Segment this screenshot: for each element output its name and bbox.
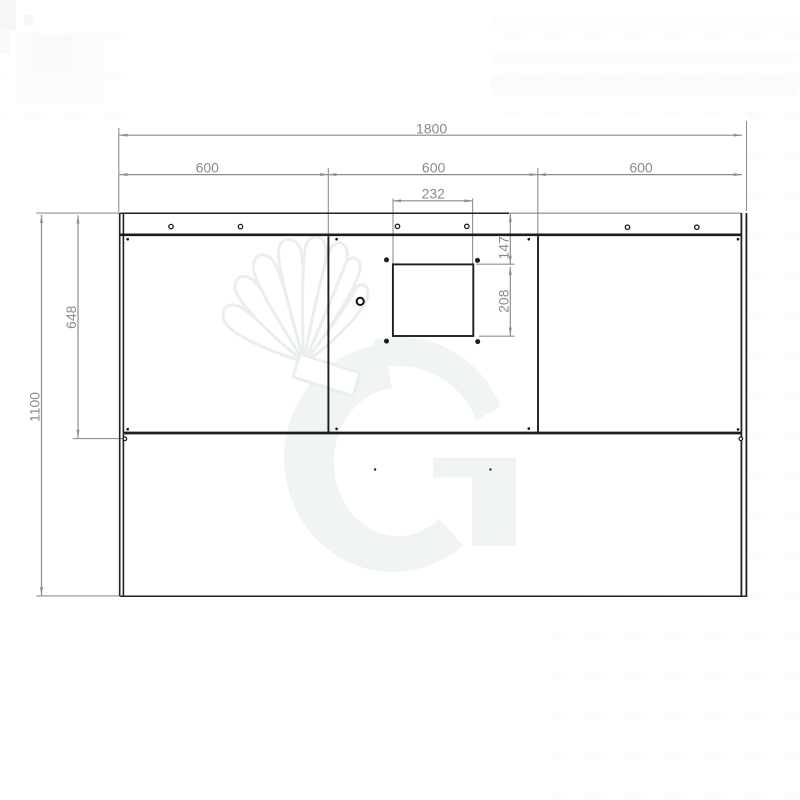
svg-text:208: 208 — [495, 289, 511, 313]
svg-text:600: 600 — [196, 160, 220, 176]
svg-text:648: 648 — [63, 305, 79, 329]
svg-text:147: 147 — [495, 236, 511, 260]
svg-text:600: 600 — [629, 160, 653, 176]
svg-text:232: 232 — [422, 186, 446, 202]
svg-text:1800: 1800 — [416, 120, 447, 136]
svg-text:600: 600 — [422, 160, 446, 176]
svg-text:1100: 1100 — [26, 392, 42, 422]
